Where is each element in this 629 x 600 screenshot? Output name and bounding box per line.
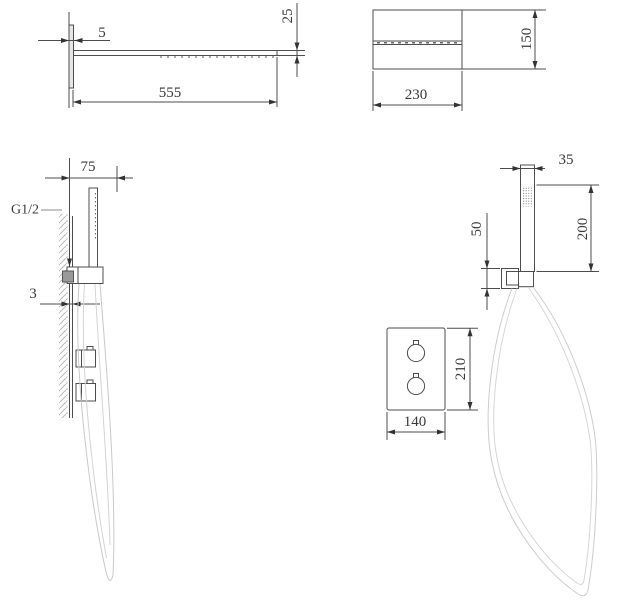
arrowhead xyxy=(589,264,594,272)
shower-head-outline xyxy=(373,10,462,69)
wall-hatching xyxy=(59,214,68,418)
knob-tab-1 xyxy=(414,341,419,345)
wand-spray-face xyxy=(523,186,534,207)
arrowhead xyxy=(387,430,395,435)
dim-label-panel-width: 140 xyxy=(404,414,427,430)
arrowhead xyxy=(533,61,538,69)
arrowhead xyxy=(485,261,490,269)
arrowhead xyxy=(485,289,490,297)
arrowhead xyxy=(454,103,462,108)
technical-drawing-sheet: 5 555 25 230 150 xyxy=(0,0,629,600)
thread-size-label: G1/2 xyxy=(11,203,39,218)
arrowhead xyxy=(295,56,300,64)
dim-label-bracket-height: 50 xyxy=(469,222,485,237)
dim-label-length: 555 xyxy=(159,85,182,101)
arrowhead xyxy=(589,185,594,193)
dim-label-panel-height: 210 xyxy=(453,358,469,381)
arrowhead xyxy=(295,43,300,51)
wall-reference-arrowhead xyxy=(67,259,72,267)
arrowhead xyxy=(62,176,70,181)
arrowhead xyxy=(73,100,81,105)
arrowhead xyxy=(269,100,277,105)
figure-overhead-shower-front xyxy=(373,10,546,111)
hand-shower-wand-side xyxy=(89,188,98,267)
wall-holder-inner xyxy=(507,272,519,286)
arrowhead xyxy=(373,103,381,108)
valve-handle-tab-2 xyxy=(87,380,93,384)
hose-loop-front-outer xyxy=(488,287,597,596)
shower-set-dimension-drawing: 5 555 25 230 150 xyxy=(0,0,629,600)
arrowhead xyxy=(61,38,69,43)
dim-label-width: 230 xyxy=(405,87,428,103)
arrowhead xyxy=(533,10,538,18)
mixer-knob-2 xyxy=(407,377,424,394)
dim-label-wall-distance: 75 xyxy=(81,159,96,175)
arrowhead xyxy=(437,430,445,435)
dim-label-height: 150 xyxy=(519,28,535,51)
dim-label-wand-length: 200 xyxy=(575,218,591,241)
arrowhead xyxy=(117,176,125,181)
wall-mount-plate xyxy=(69,25,74,88)
figure-hand-shower-side xyxy=(40,158,133,580)
wall-outlet-square xyxy=(63,271,74,282)
arrowhead xyxy=(513,166,521,171)
arrowhead xyxy=(535,166,543,171)
arrowhead xyxy=(73,302,81,307)
dim-label-thickness: 25 xyxy=(280,9,296,24)
knob-tab-2 xyxy=(414,374,419,378)
wand-cradle xyxy=(519,272,534,287)
arrowhead xyxy=(468,328,473,336)
mixer-knob-1 xyxy=(407,344,424,361)
dim-label-plate-thickness: 3 xyxy=(29,286,37,302)
arrowhead xyxy=(75,38,83,43)
dim-label-wand-width: 35 xyxy=(559,152,574,168)
figure-mixer-panel-front xyxy=(387,328,478,440)
valve-handle-tab-1 xyxy=(87,347,93,351)
hand-shower-wand-front xyxy=(521,165,535,272)
arrowhead xyxy=(468,402,473,410)
hose-loop-side-inner2 xyxy=(95,284,110,545)
dim-label-wall-offset: 5 xyxy=(98,25,106,41)
hose-loop-front-inner xyxy=(494,287,592,584)
